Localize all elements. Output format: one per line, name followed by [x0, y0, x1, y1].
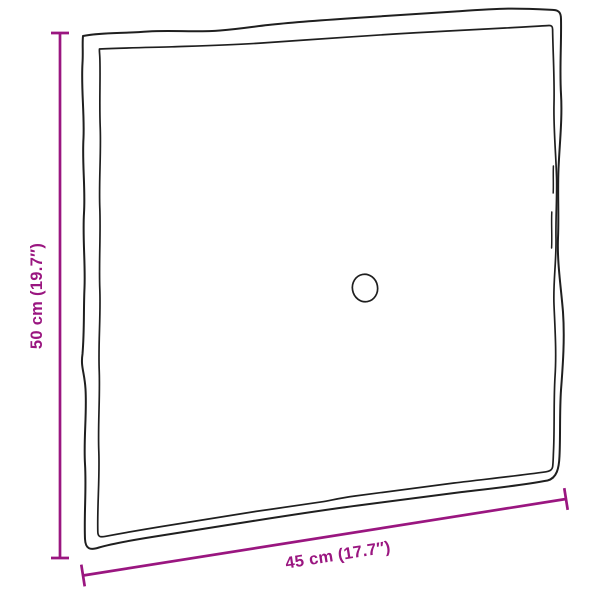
- cushion-outer-outline: [82, 9, 564, 549]
- cushion-sketch: [82, 9, 564, 549]
- width-dimension-label: 45 cm (17.7″): [284, 538, 392, 572]
- button-tuft-icon: [350, 272, 380, 304]
- width-dimension: 45 cm (17.7″): [81, 488, 570, 600]
- height-dimension: 50 cm (19.7″): [28, 33, 69, 558]
- width-dimension-left-cap: [81, 565, 84, 587]
- diagram-canvas: 50 cm (19.7″) 45 cm (17.7″): [0, 0, 600, 600]
- cushion-inner-seam: [98, 25, 557, 536]
- product-dimension-diagram: 50 cm (19.7″) 45 cm (17.7″): [0, 0, 600, 600]
- width-dimension-right-cap: [564, 488, 567, 510]
- height-dimension-label: 50 cm (19.7″): [28, 243, 46, 349]
